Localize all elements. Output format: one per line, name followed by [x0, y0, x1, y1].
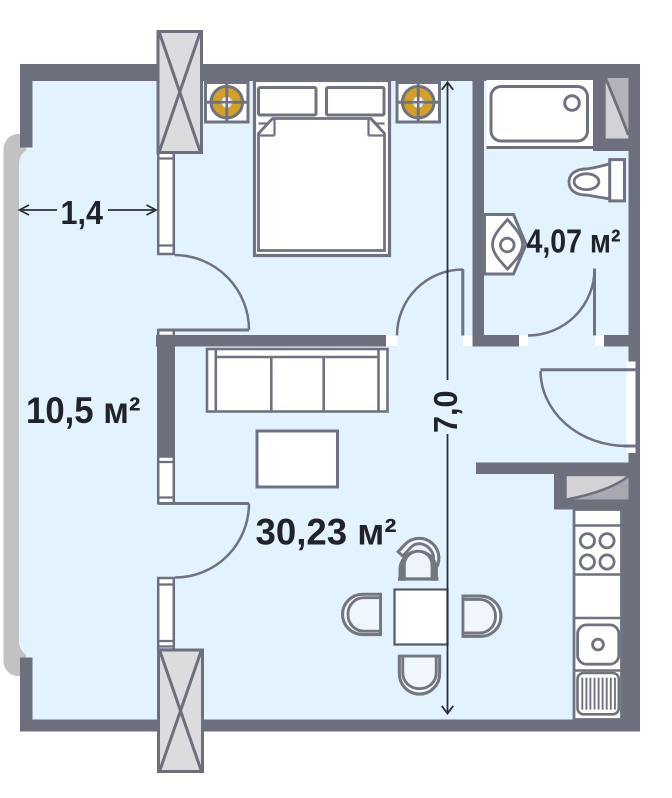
svg-text:4,07 м²: 4,07 м²	[527, 223, 621, 260]
svg-text:1,4: 1,4	[61, 194, 104, 231]
svg-text:7,0: 7,0	[427, 391, 464, 434]
svg-text:10,5 м²: 10,5 м²	[26, 390, 141, 431]
svg-text:30,23 м²: 30,23 м²	[256, 512, 397, 553]
